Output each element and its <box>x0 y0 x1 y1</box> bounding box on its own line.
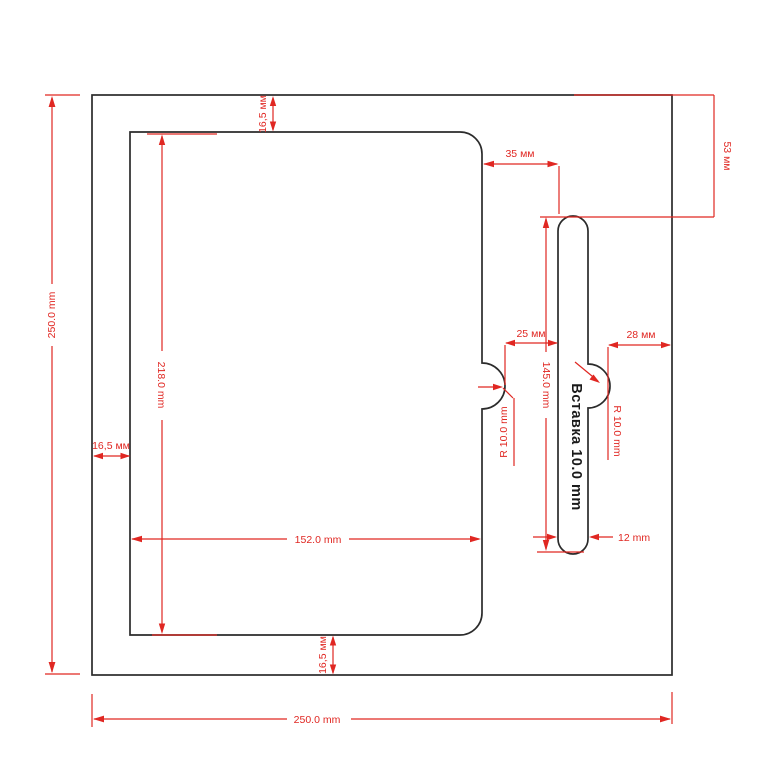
dim-margin-top: 16,5 мм <box>257 95 276 133</box>
dim-margin-left-label: 16,5 мм <box>92 440 130 452</box>
dim-35-label: 35 мм <box>505 148 534 160</box>
radius-right-label: R 10.0 mm <box>611 405 623 457</box>
dim-slot-width: 12 mm <box>533 532 650 544</box>
dim-12-label: 12 mm <box>618 532 650 544</box>
radius-left-label: R 10.0 mm <box>498 406 510 458</box>
dim-cover-height: 218.0 mm <box>147 134 217 635</box>
dim-outer-height-label: 250.0 mm <box>46 291 58 338</box>
dim-outer-width: 250.0 mm <box>92 692 672 727</box>
dim-53-label: 53 мм <box>721 141 733 170</box>
dim-28-label: 28 мм <box>626 329 655 341</box>
dim-cover-width-label: 152.0 mm <box>295 534 342 546</box>
technical-drawing-canvas: 250.0 mm 250.0 mm 16,5 мм 16,5 мм 16,5 м… <box>0 0 768 768</box>
leader-radius-left: R 10.0 mm <box>478 384 514 466</box>
dim-margin-bottom: 16,5 мм <box>317 636 336 675</box>
dim-slot-top-offset: 53 мм <box>540 95 733 217</box>
dieline-drawing: 250.0 mm 250.0 mm 16,5 мм 16,5 мм 16,5 м… <box>0 0 768 768</box>
dim-cover-width: 152.0 mm <box>131 534 481 546</box>
dim-slot-height-label: 145.0 mm <box>540 362 552 409</box>
dim-cover-to-slot-top: 35 мм <box>483 148 559 214</box>
outer-board-contour <box>92 95 672 675</box>
dim-cover-height-label: 218.0 mm <box>155 362 167 409</box>
dim-outer-width-label: 250.0 mm <box>294 714 341 726</box>
insert-title: Вставка 10.0 mm <box>568 383 584 511</box>
dim-margin-top-label: 16,5 мм <box>257 95 269 133</box>
dim-margin-left: 16,5 мм <box>92 440 130 459</box>
dim-25-label: 25 мм <box>516 328 545 340</box>
cover-panel-contour <box>130 132 505 635</box>
dim-outer-height: 250.0 mm <box>45 95 80 674</box>
dim-margin-bottom-label: 16,5 мм <box>317 636 329 674</box>
